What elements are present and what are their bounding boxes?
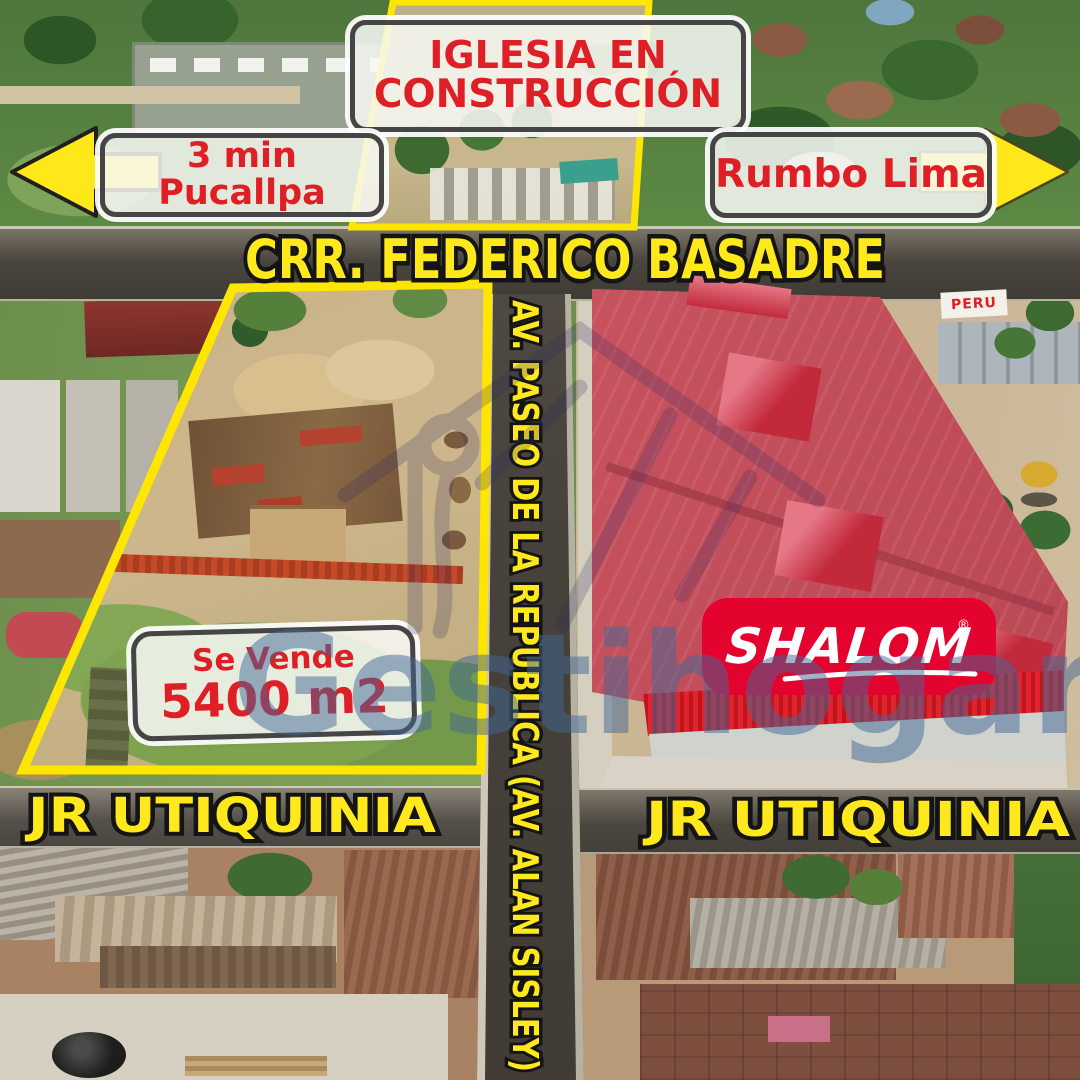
rumbo-lima-label: Rumbo Lima <box>715 155 987 196</box>
highway-label: CRR. FEDERICO BASADRE <box>245 228 885 291</box>
church-label-line1: IGLESIA EN <box>429 36 666 76</box>
pucallpa-label: 3 min Pucallpa <box>105 138 379 212</box>
agency-house-watermark-icon <box>330 295 830 655</box>
pucallpa-label-box: 3 min Pucallpa <box>100 133 384 217</box>
agency-name-watermark: Gestihogar <box>232 616 1080 756</box>
church-label-box: IGLESIA EN CONSTRUCCIÓN <box>350 20 746 132</box>
church-label-line2: CONSTRUCCIÓN <box>374 75 722 116</box>
street-label-right: JR UTIQUINIA <box>642 792 1070 848</box>
aerial-ad-poster: CRR. FEDERICO BASADRE AV. PASEO DE LA RE… <box>0 0 1080 1080</box>
street-label-left: JR UTIQUINIA <box>25 788 436 844</box>
rumbo-lima-label-box: Rumbo Lima <box>710 132 992 218</box>
